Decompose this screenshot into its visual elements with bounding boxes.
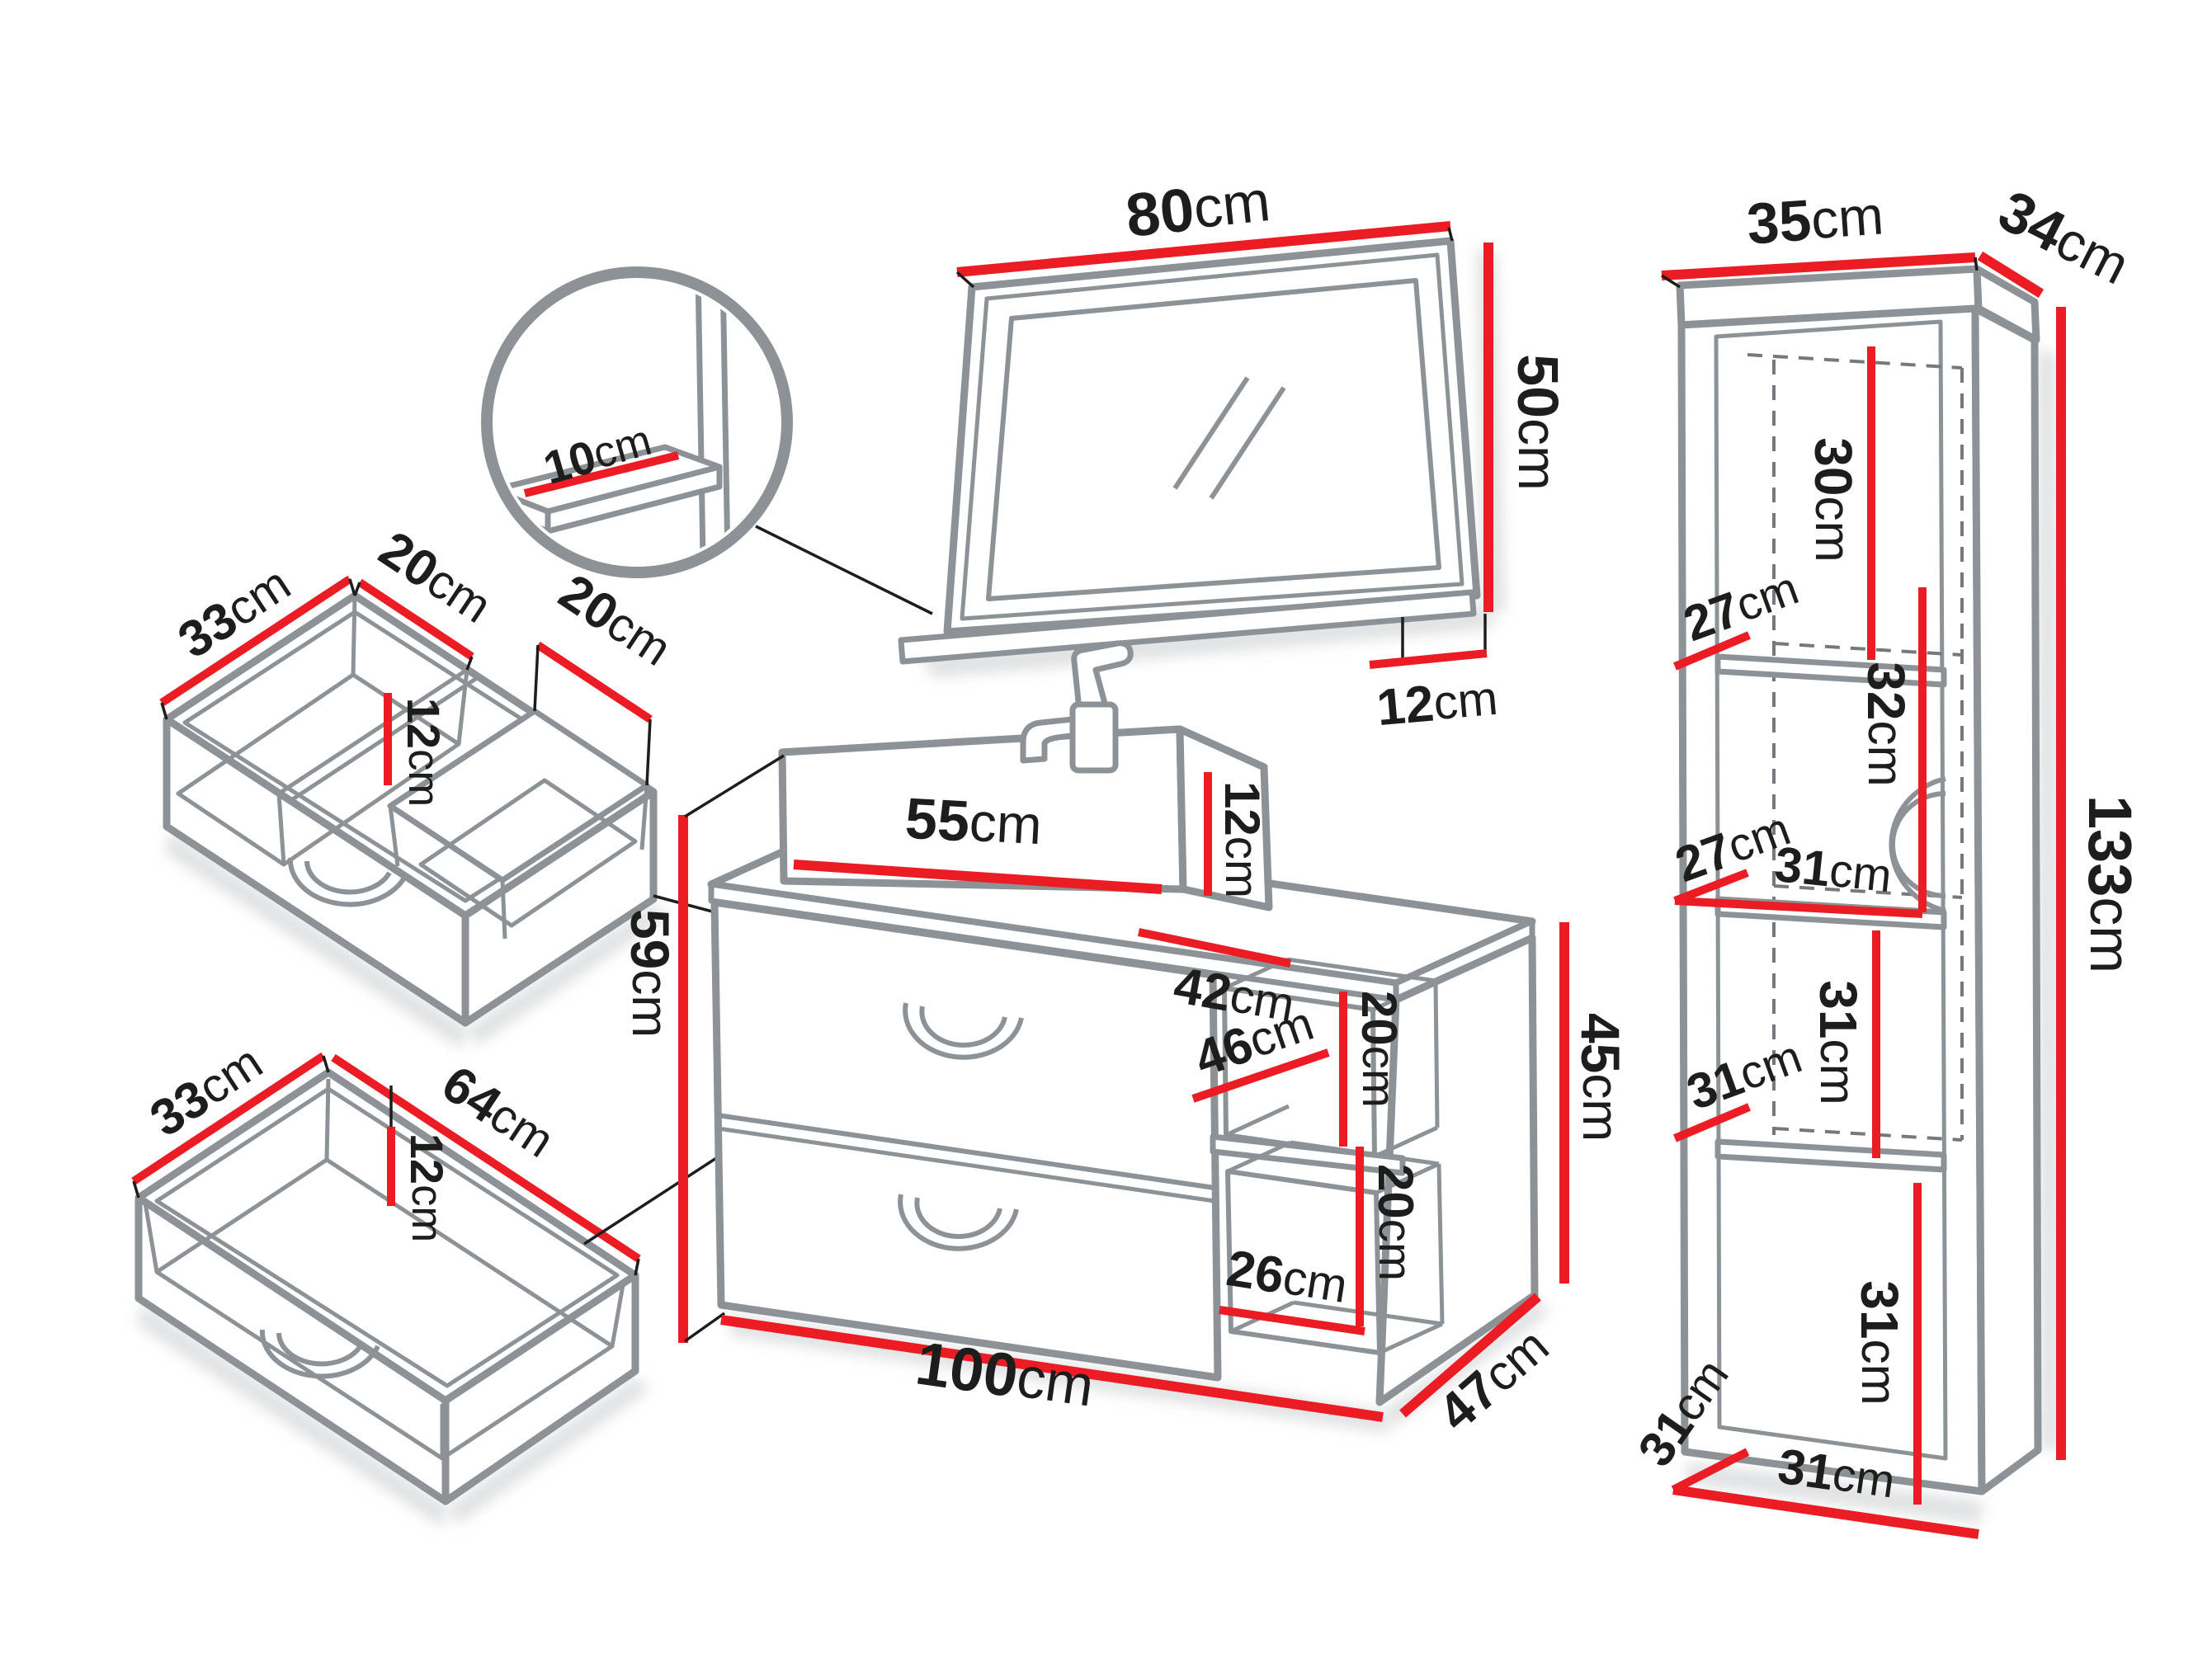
dim-unit: cm — [1431, 671, 1500, 730]
dim-unit: cm — [2078, 897, 2143, 973]
furniture-dimension-diagram: 10cm 80cm 50cm 12cm — [0, 0, 2212, 1658]
dim-unit: cm — [1811, 1039, 1866, 1105]
dim-unit: cm — [1280, 1250, 1351, 1312]
dim-unit: cm — [1354, 1046, 1406, 1108]
dim-value: 31 — [1850, 1280, 1909, 1339]
dim-unit: cm — [1828, 843, 1894, 902]
dim-value: 133 — [2077, 795, 2145, 897]
dim-cabinet-section1-height: 30cm — [1804, 437, 1863, 562]
dim-unit: cm — [403, 1185, 452, 1242]
dim-cabinet-width: 35cm — [1745, 182, 1886, 256]
dim-unit: cm — [1809, 184, 1886, 250]
dim-cabinet-section3-height: 31cm — [1809, 980, 1868, 1105]
dim-unit: cm — [622, 969, 679, 1038]
dim-vanity-side-height: 45cm — [1570, 1013, 1631, 1142]
diagram-canvas: 10cm 80cm 50cm 12cm — [0, 0, 2212, 1658]
dim-value: 12 — [1375, 675, 1436, 737]
dim-vanity-sink-height: 12cm — [1215, 781, 1271, 898]
dim-unit: cm — [1217, 836, 1269, 898]
dim-vanity-upper-niche-height: 20cm — [1352, 991, 1408, 1108]
dim-value: 42 — [1170, 956, 1236, 1022]
detail-leader-line — [756, 526, 932, 614]
dim-value: 26 — [1223, 1239, 1288, 1304]
dim-value: 31 — [1809, 980, 1868, 1039]
dim-mirror-height: 50cm — [1506, 354, 1570, 491]
dim-vanity-front-height: 59cm — [620, 909, 681, 1038]
dim-line-mirror-shelf-depth — [1370, 653, 1487, 665]
dim-sink-drawer-inner-height: 12cm — [399, 698, 450, 807]
dim-unit: cm — [1507, 418, 1568, 491]
dim-unit: cm — [1852, 1339, 1908, 1405]
dim-unit: cm — [1013, 1345, 1098, 1419]
dim-value: 80 — [1123, 174, 1198, 249]
dim-unit: cm — [1859, 720, 1914, 786]
dim-unit: cm — [1191, 168, 1273, 240]
cabinet-side — [1975, 309, 2038, 1491]
dim-wide-drawer-inner-height: 12cm — [402, 1133, 454, 1242]
dim-value: 30 — [1804, 437, 1863, 496]
dim-value: 31 — [1772, 836, 1832, 897]
dim-value: 12 — [402, 1133, 454, 1185]
dim-mirror-width: 80cm — [1123, 167, 1274, 250]
dim-vanity-sink-width: 55cm — [903, 786, 1043, 858]
dim-value: 32 — [1856, 662, 1916, 720]
dim-value: 45 — [1570, 1013, 1631, 1073]
dim-value: 100 — [912, 1328, 1022, 1410]
dim-unit: cm — [1573, 1073, 1630, 1142]
dim-value: 20 — [1369, 1164, 1424, 1219]
dim-cabinet-section4-height: 31cm — [1850, 1280, 1909, 1405]
dim-unit: cm — [1806, 496, 1861, 562]
dim-sink-drawer-right-width: 20cm — [549, 563, 682, 677]
mirror-corner-detail: 10cm — [487, 271, 932, 614]
dim-cabinet-section2-height: 32cm — [1856, 662, 1916, 786]
tall-cabinet: 35cm 34cm 30cm 27cm 32cm 27cm 31cm 31cm … — [1627, 178, 2145, 1534]
dim-value: 31 — [1775, 1438, 1837, 1500]
dim-value: 12 — [399, 698, 450, 749]
dim-unit: cm — [1370, 1219, 1422, 1281]
dim-value: 20 — [1352, 991, 1408, 1046]
dim-value: 50 — [1506, 354, 1570, 418]
vanity-unit: 55cm 12cm 42cm 59cm 46cm 20cm 45cm 20cm … — [620, 643, 1631, 1443]
dim-unit: cm — [1829, 1447, 1898, 1507]
dim-unit: cm — [968, 791, 1043, 855]
dim-value: 59 — [620, 909, 681, 969]
dim-value: 55 — [903, 786, 971, 854]
dim-cabinet-height: 133cm — [2077, 795, 2145, 973]
dim-value: 35 — [1745, 187, 1813, 256]
dim-vanity-lower-niche-height: 20cm — [1369, 1164, 1424, 1281]
dim-mirror-shelf-depth: 12cm — [1375, 669, 1500, 737]
dim-unit: cm — [400, 749, 449, 807]
dim-vanity-niche-width: 26cm — [1223, 1239, 1351, 1314]
dim-value: 12 — [1215, 781, 1271, 836]
